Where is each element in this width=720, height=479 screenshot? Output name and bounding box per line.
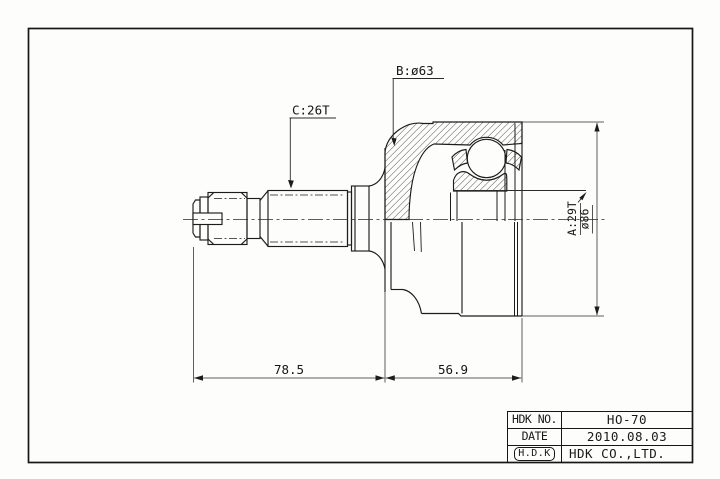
hdk-logo: H.D.K xyxy=(508,446,562,462)
part-number-label: HDK NO. xyxy=(508,412,562,428)
dimension-label-outer-diameter: ø86 xyxy=(578,209,592,230)
bearing-ball xyxy=(467,139,505,177)
title-block-row-date: DATE 2010.08.03 xyxy=(508,428,692,445)
company-name: HDK CO.,LTD. xyxy=(562,446,692,462)
cv-joint-technical-drawing: C:26T B:ø63 78.5 56.9 A:29T ø86 xyxy=(0,0,720,479)
dimension-label-length-left: 78.5 xyxy=(274,362,304,377)
dimension-label-b-diameter: B:ø63 xyxy=(396,63,434,78)
dimension-label-c-spline: C:26T xyxy=(292,103,330,118)
drive-shaft xyxy=(193,168,385,269)
circlip-groove xyxy=(348,192,352,245)
outer-race-housing xyxy=(385,122,522,316)
snap-ring-slot xyxy=(193,213,222,225)
dimensions xyxy=(194,79,605,383)
cage-section-right xyxy=(506,150,522,171)
sheet-border-frame xyxy=(29,29,693,463)
title-block-row-company: H.D.K HDK CO.,LTD. xyxy=(508,445,692,462)
title-block-row-part-number: HDK NO. HO-70 xyxy=(508,412,692,428)
title-block: HDK NO. HO-70 DATE 2010.08.03 H.D.K HDK … xyxy=(507,411,693,463)
spline-root-lines xyxy=(214,195,345,242)
cage-section-left xyxy=(452,150,468,171)
dimension-label-length-right: 56.9 xyxy=(438,362,468,377)
date-value: 2010.08.03 xyxy=(562,429,692,445)
date-label: DATE xyxy=(508,429,562,445)
part-number-value: HO-70 xyxy=(562,412,692,428)
